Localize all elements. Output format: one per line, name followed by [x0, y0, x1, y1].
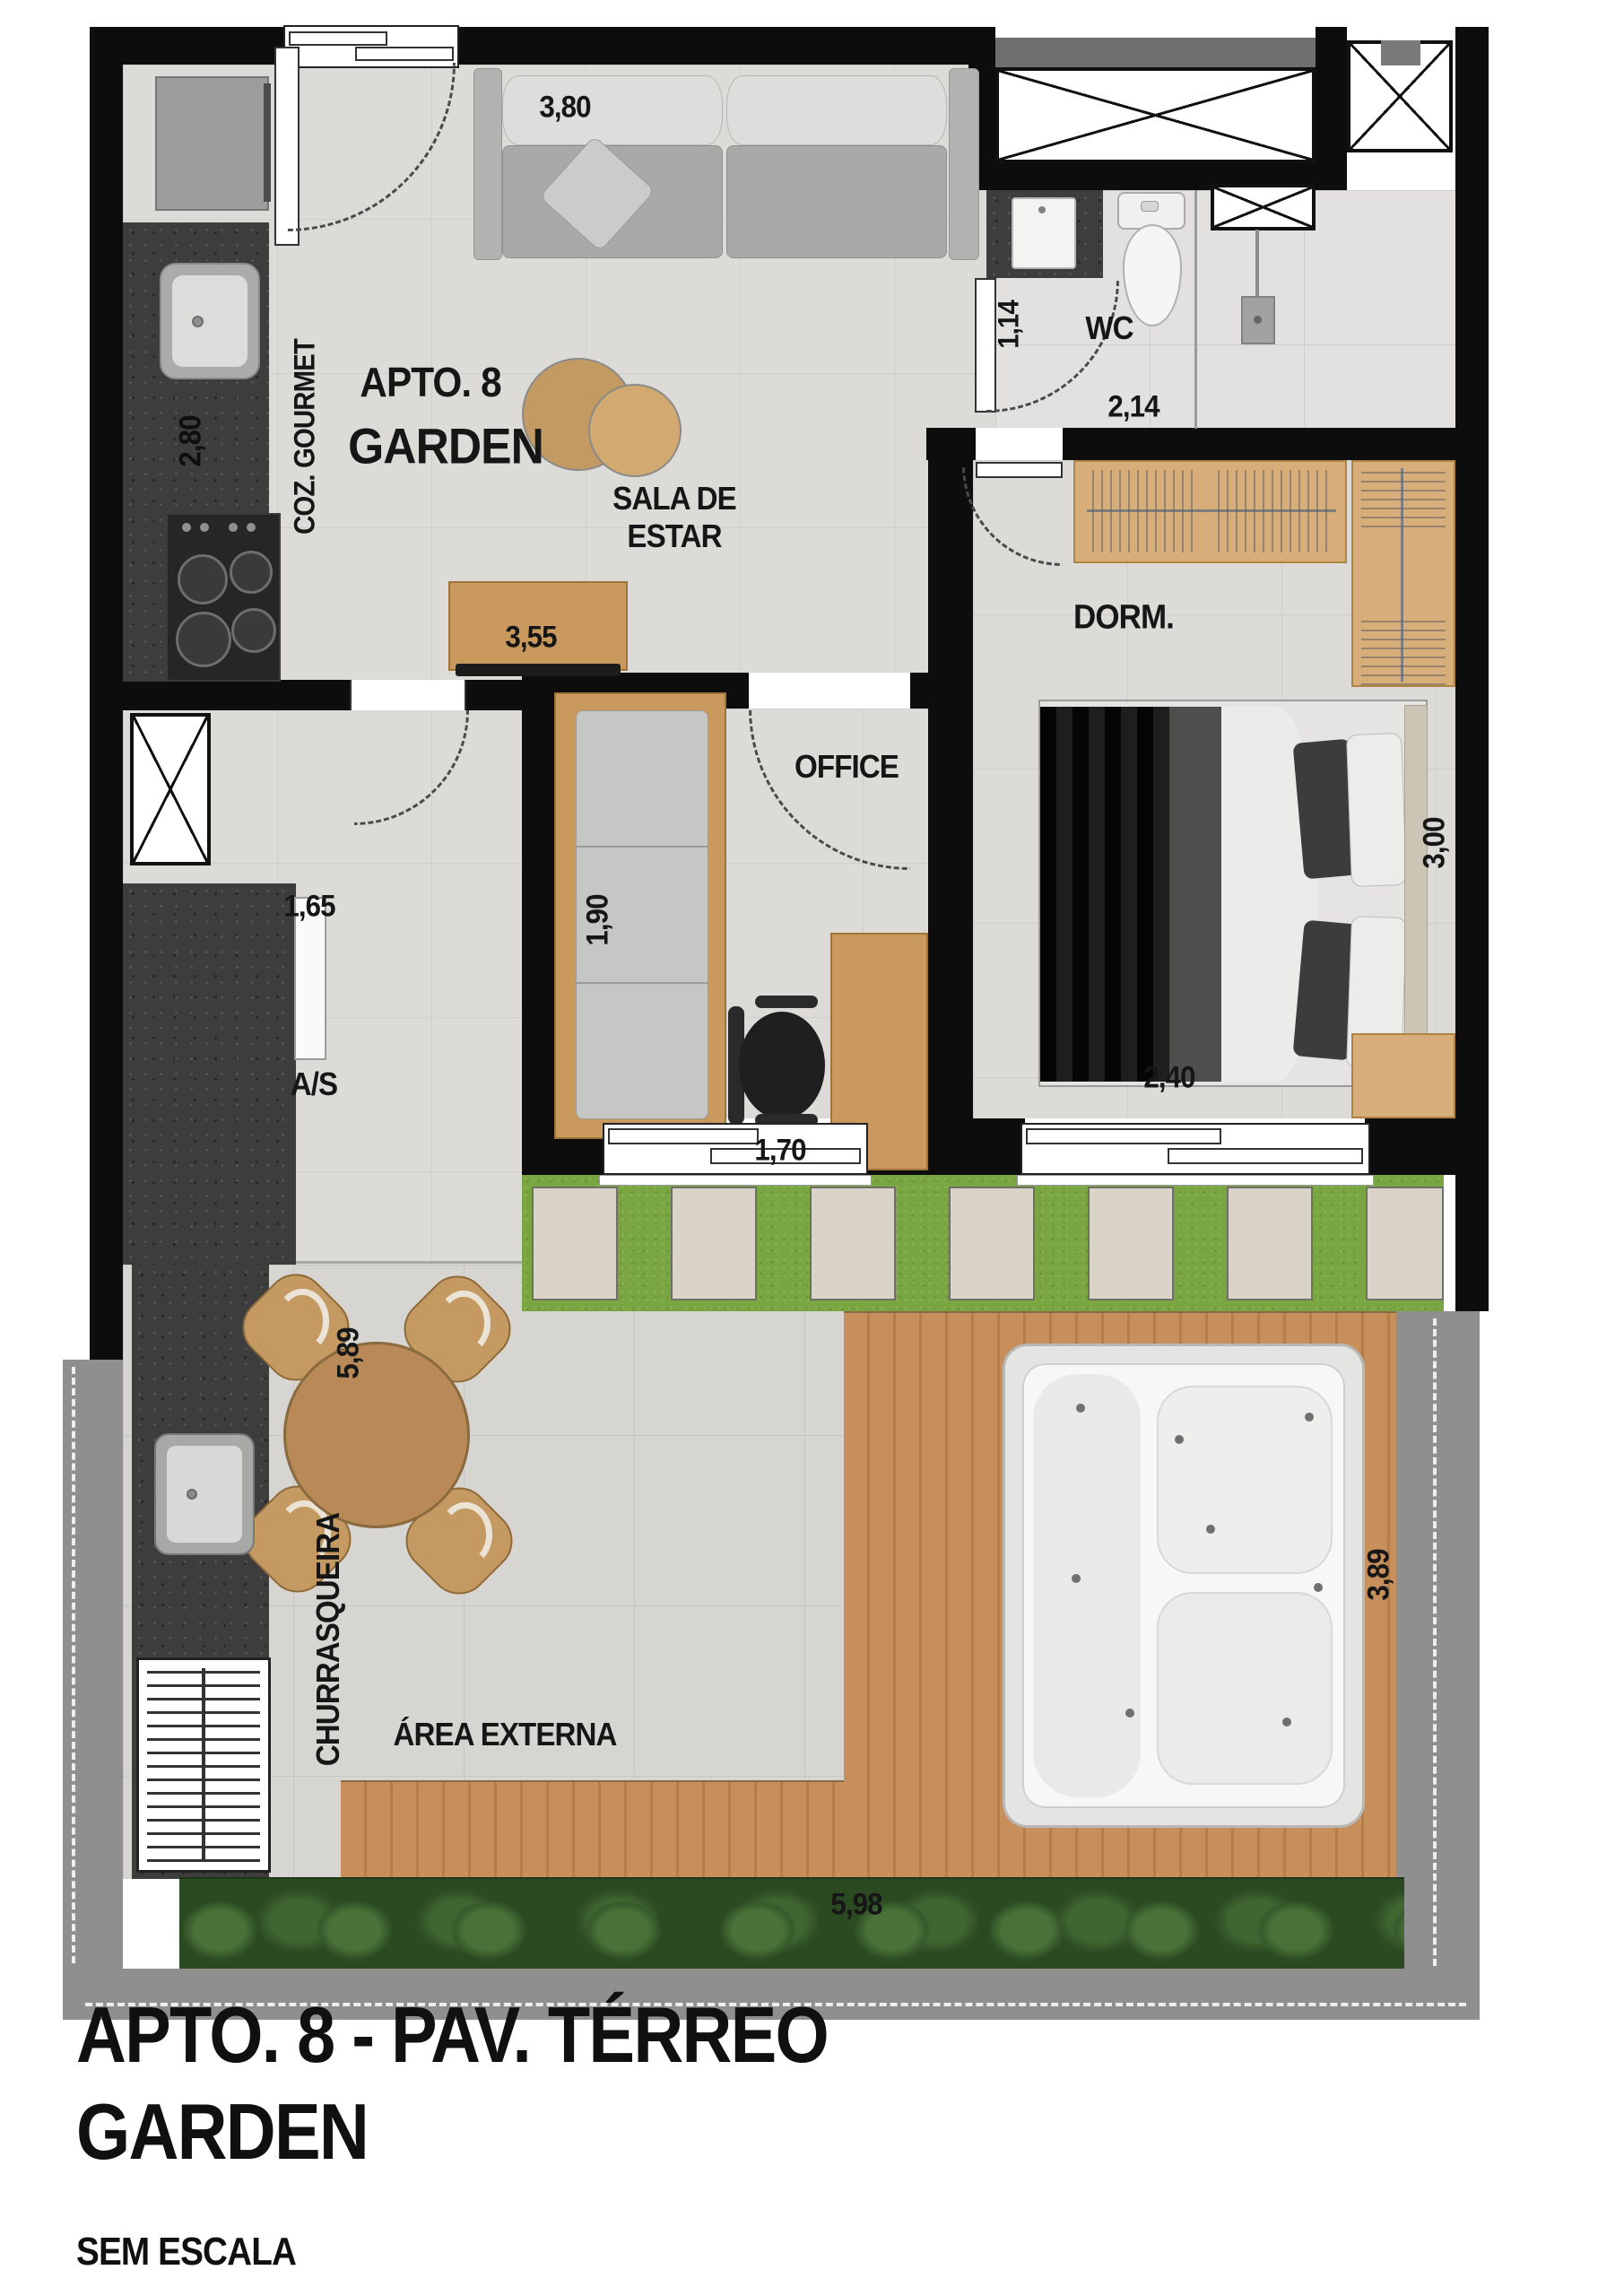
stepping-paver: [1088, 1187, 1174, 1300]
gray-box: [1381, 40, 1420, 65]
sofa-arm-left: [473, 68, 502, 260]
office-window-sill: [599, 1175, 872, 1186]
shower-partition: [1194, 190, 1197, 429]
tv: [456, 664, 621, 676]
chair-back: [437, 1291, 491, 1355]
shaft-hatched: [995, 67, 1316, 163]
cooktop-knob: [247, 523, 256, 532]
external-sink-drain: [187, 1489, 197, 1500]
caption-line1: APTO. 8 - PAV. TÉRREO: [76, 1989, 828, 2081]
dim-externa-width: 5,98: [830, 1888, 881, 1923]
shaft-hatched: [1211, 184, 1316, 230]
barbecue-grill-grate: [147, 1668, 260, 1862]
sidewalk-dash-right: [1433, 1318, 1437, 1966]
stepping-paver: [532, 1187, 618, 1300]
dim-sofa-wall: 3,80: [539, 91, 590, 126]
office-chair-arm: [755, 996, 818, 1008]
room-label-sala-line1: SALA DE: [612, 480, 736, 517]
bedroom-dresser: [1351, 1033, 1455, 1118]
wall-left-outer: [90, 27, 123, 1360]
cooktop-knob: [200, 523, 209, 532]
wood-strip: [341, 1780, 844, 1879]
wardrobe-side-hangers: [1361, 465, 1446, 527]
bedroom-window-sash: [1168, 1148, 1363, 1164]
external-sink-basin: [167, 1446, 242, 1543]
stepping-paver: [949, 1187, 1035, 1300]
chair-back: [275, 1289, 329, 1353]
caption-line2: GARDEN: [76, 2086, 368, 2178]
office-chair-seat: [739, 1012, 825, 1119]
room-label-area-externa: ÁREA EXTERNA: [393, 1716, 616, 1753]
wall: [1365, 1118, 1489, 1175]
stepping-paver: [1227, 1187, 1313, 1300]
hot-tub-jet: [1314, 1583, 1323, 1592]
dim-office-sofa: 1,90: [581, 894, 616, 945]
office-window-sash: [608, 1128, 759, 1144]
room-label-dorm: DORM.: [1073, 599, 1174, 638]
shower-stem: [1255, 230, 1259, 296]
room-label-wc: WC: [1085, 309, 1133, 347]
dim-office-width: 1,70: [754, 1134, 805, 1169]
dim-hall: 1,14: [993, 300, 1026, 349]
hot-tub-jet: [1125, 1709, 1134, 1718]
unit-title-line2: GARDEN: [348, 417, 543, 475]
bed-headboard: [1404, 705, 1428, 1085]
kitchen-sink-drain: [192, 316, 204, 327]
room-label-servico: A/S: [291, 1065, 337, 1103]
wall: [1316, 27, 1347, 190]
wall-office-left: [522, 709, 554, 1175]
shaft-hatched: [130, 713, 211, 865]
dim-kitchen-counter: 2,80: [174, 415, 209, 466]
sidewalk-dash-left: [72, 1367, 75, 1963]
room-label-sala-line2: ESTAR: [627, 517, 721, 555]
dim-servico-width: 1,65: [283, 890, 334, 925]
wardrobe-hangers: [1218, 470, 1327, 552]
dim-bedroom-depth: 3,00: [1418, 817, 1453, 868]
dim-deck-width: 3,89: [1362, 1549, 1397, 1600]
room-label-coz-gourmet: COZ. GOURMET: [289, 339, 322, 535]
cooktop-knob: [229, 523, 238, 532]
shower-head-dot: [1254, 316, 1262, 324]
cooktop-knob: [182, 523, 191, 532]
bedroom-window: [1020, 1123, 1370, 1175]
service-counter: [123, 883, 296, 1265]
dim-bedroom-window: 2,40: [1143, 1061, 1194, 1096]
hot-tub-jet: [1072, 1574, 1081, 1583]
room-label-churrasqueira: CHURRASQUEIRA: [309, 1513, 347, 1766]
cooktop-burner: [178, 554, 228, 604]
hot-tub-seat: [1157, 1592, 1333, 1785]
dim-externa-depth: 5,89: [332, 1327, 367, 1378]
hot-tub-lounger: [1033, 1374, 1141, 1797]
dim-tv-console: 3,55: [505, 621, 556, 656]
bed-pillow-white: [1346, 733, 1407, 887]
stepping-paver: [1366, 1187, 1444, 1300]
wall: [459, 27, 968, 65]
chair-back: [439, 1502, 492, 1567]
bed-sheet-fold: [1169, 707, 1221, 1082]
sidewalk-right: [1396, 1311, 1480, 1969]
corridor-gray-band: [995, 38, 1316, 67]
cooktop-burner: [176, 612, 231, 667]
bedroom-window-sash: [1026, 1128, 1221, 1144]
toilet-button: [1141, 201, 1159, 212]
hot-tub-jet: [1175, 1435, 1184, 1444]
kitchen-sink-basin: [172, 275, 248, 367]
coffee-table-small: [588, 384, 682, 477]
office-window: [603, 1123, 868, 1175]
hot-tub-jet: [1282, 1718, 1291, 1726]
stepping-paver: [671, 1187, 757, 1300]
outdoor-table: [283, 1342, 470, 1528]
caption-scale-note: SEM ESCALA: [76, 2230, 296, 2274]
sofa-back-cushion: [726, 75, 947, 145]
cooktop-burner: [230, 551, 273, 594]
hedge: [179, 1877, 1404, 1969]
stepping-paver: [810, 1187, 896, 1300]
wall: [466, 680, 522, 710]
room-label-office: OFFICE: [795, 748, 899, 786]
hot-tub-jet: [1305, 1413, 1314, 1422]
bedroom-window-sill: [1017, 1175, 1374, 1186]
wardrobe-side-hangers: [1361, 621, 1446, 685]
hot-tub-jet: [1206, 1525, 1215, 1534]
sofa-back-cushion: [502, 75, 723, 145]
hot-tub-jet: [1076, 1404, 1085, 1413]
floor-plan: APTO. 8 GARDEN COZ. GOURMET SALA DE ESTA…: [0, 0, 1624, 2296]
dim-wc-width: 2,14: [1107, 390, 1159, 425]
unit-title-line1: APTO. 8: [360, 358, 500, 406]
